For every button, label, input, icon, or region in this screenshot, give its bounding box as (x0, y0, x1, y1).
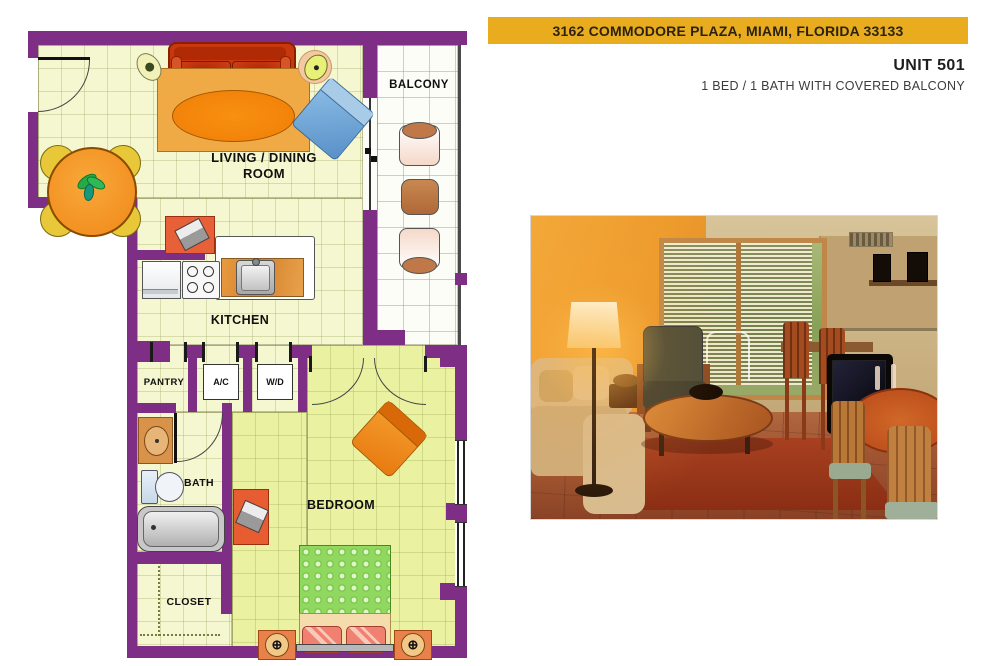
door-jamb (236, 342, 239, 362)
photo-dining-chair (887, 426, 931, 510)
bath-vanity (138, 417, 173, 464)
balcony-table (401, 179, 439, 215)
burner (187, 282, 198, 293)
wall (28, 112, 38, 207)
sofa-back (174, 47, 286, 60)
lamp-glyph: ⊕ (272, 637, 283, 653)
room-label-pantry: PANTRY (144, 377, 184, 388)
floor-plan: A/C W/D ⊕ (0, 0, 500, 666)
room-label-closet: CLOSET (167, 596, 212, 608)
fridge-handle (143, 289, 178, 294)
stove (182, 261, 220, 299)
address-text: 3162 COMMODORE PLAZA, MIAMI, FLORIDA 331… (553, 23, 904, 39)
photo-bar-chair (783, 322, 809, 378)
bathtub (137, 506, 225, 552)
wd-label: W/D (266, 377, 284, 387)
chair-seat (829, 463, 871, 479)
room-label-living-2: ROOM (243, 166, 285, 181)
door-jamb (309, 356, 312, 372)
chair-leg (861, 479, 866, 519)
window-pane-line (463, 523, 465, 586)
wd-unit-box: W/D (257, 364, 293, 400)
ac-label: A/C (213, 377, 229, 387)
unit-subtitle: 1 BED / 1 BATH WITH COVERED BALCONY (701, 79, 965, 93)
toilet-bowl (155, 472, 184, 502)
photo-wine-glass (875, 366, 880, 390)
bedroom-window (455, 522, 467, 587)
bed-headboard (296, 644, 394, 652)
plant-decor (298, 50, 332, 84)
wall (137, 403, 176, 413)
window-pane-line (463, 441, 465, 504)
ac-unit-box: A/C (203, 364, 239, 400)
sliding-door-handle (365, 148, 371, 154)
bar-chair-leg (785, 378, 789, 440)
lamp-glyph: ⊕ (408, 637, 419, 653)
drain-dot (155, 439, 159, 443)
photo-vent (849, 232, 893, 247)
photo-wine-glass (891, 364, 896, 390)
wall (363, 45, 377, 98)
sink-faucet (252, 258, 260, 266)
room-label-living-1: LIVING / DINING (211, 150, 317, 165)
bed-blanket (299, 545, 391, 619)
wall (440, 350, 467, 367)
laptop-icon (174, 218, 210, 251)
chair-back-cushion (402, 122, 437, 139)
flyer-page: A/C W/D ⊕ (0, 0, 1000, 666)
window-pane-line (457, 523, 459, 586)
wall (363, 210, 377, 345)
wall (188, 352, 197, 412)
photo-speaker (907, 252, 928, 282)
room-label-bath: BATH (184, 477, 214, 489)
lamp-symbol: ⊕ (265, 633, 289, 657)
lamp-symbol: ⊕ (401, 633, 425, 657)
chair-back-cushion (402, 257, 437, 274)
bedroom-window (455, 440, 467, 505)
door-jamb (289, 342, 292, 362)
plant-dot (313, 64, 320, 71)
room-label-kitchen: KITCHEN (211, 313, 269, 327)
door-jamb (424, 356, 427, 372)
photo-warm-overlay (531, 216, 751, 519)
address-banner: 3162 COMMODORE PLAZA, MIAMI, FLORIDA 331… (488, 17, 968, 44)
door-jamb (202, 342, 205, 362)
sliding-door-handle (371, 156, 377, 162)
photo-dining-chair (831, 401, 865, 471)
desk-living (165, 216, 215, 254)
photo-speaker (873, 254, 891, 282)
wall (363, 330, 405, 345)
bathtub-drain (151, 525, 156, 530)
wall (137, 552, 232, 564)
bar-chair-leg (821, 384, 825, 450)
burner (187, 266, 198, 277)
balcony-chair (399, 125, 440, 166)
door-jamb (255, 342, 258, 362)
wall (221, 564, 232, 614)
window-pane-line (457, 441, 459, 504)
unit-photo (530, 215, 938, 520)
rug-oval (172, 90, 295, 142)
room-label-balcony: BALCONY (389, 79, 449, 91)
wall (455, 273, 467, 285)
laptop-icon (235, 500, 269, 533)
plant-dot (143, 61, 156, 74)
balcony-railing (458, 45, 461, 350)
room-label-bedroom: BEDROOM (307, 498, 375, 512)
burner (203, 282, 214, 293)
wall (127, 197, 137, 658)
unit-title: UNIT 501 (893, 57, 965, 75)
sink-basin (241, 265, 270, 291)
nightstand: ⊕ (258, 630, 296, 660)
entry-door-gap (28, 58, 38, 112)
vanity-basin (144, 426, 169, 456)
wall (243, 352, 252, 412)
closet-rod-line (140, 634, 220, 636)
balcony-chair (399, 228, 440, 269)
door-jamb (184, 342, 187, 362)
desk-bedroom (233, 489, 269, 545)
chair-leg (833, 479, 838, 519)
bar-chair-leg (802, 378, 806, 440)
refrigerator (142, 261, 181, 299)
door-jamb (150, 342, 153, 362)
wall (298, 352, 307, 412)
wall (446, 503, 467, 520)
kitchen-sink (236, 260, 275, 295)
nightstand: ⊕ (394, 630, 432, 660)
chair-seat (885, 502, 938, 519)
burner (203, 266, 214, 277)
closet-rod-line (158, 566, 160, 636)
